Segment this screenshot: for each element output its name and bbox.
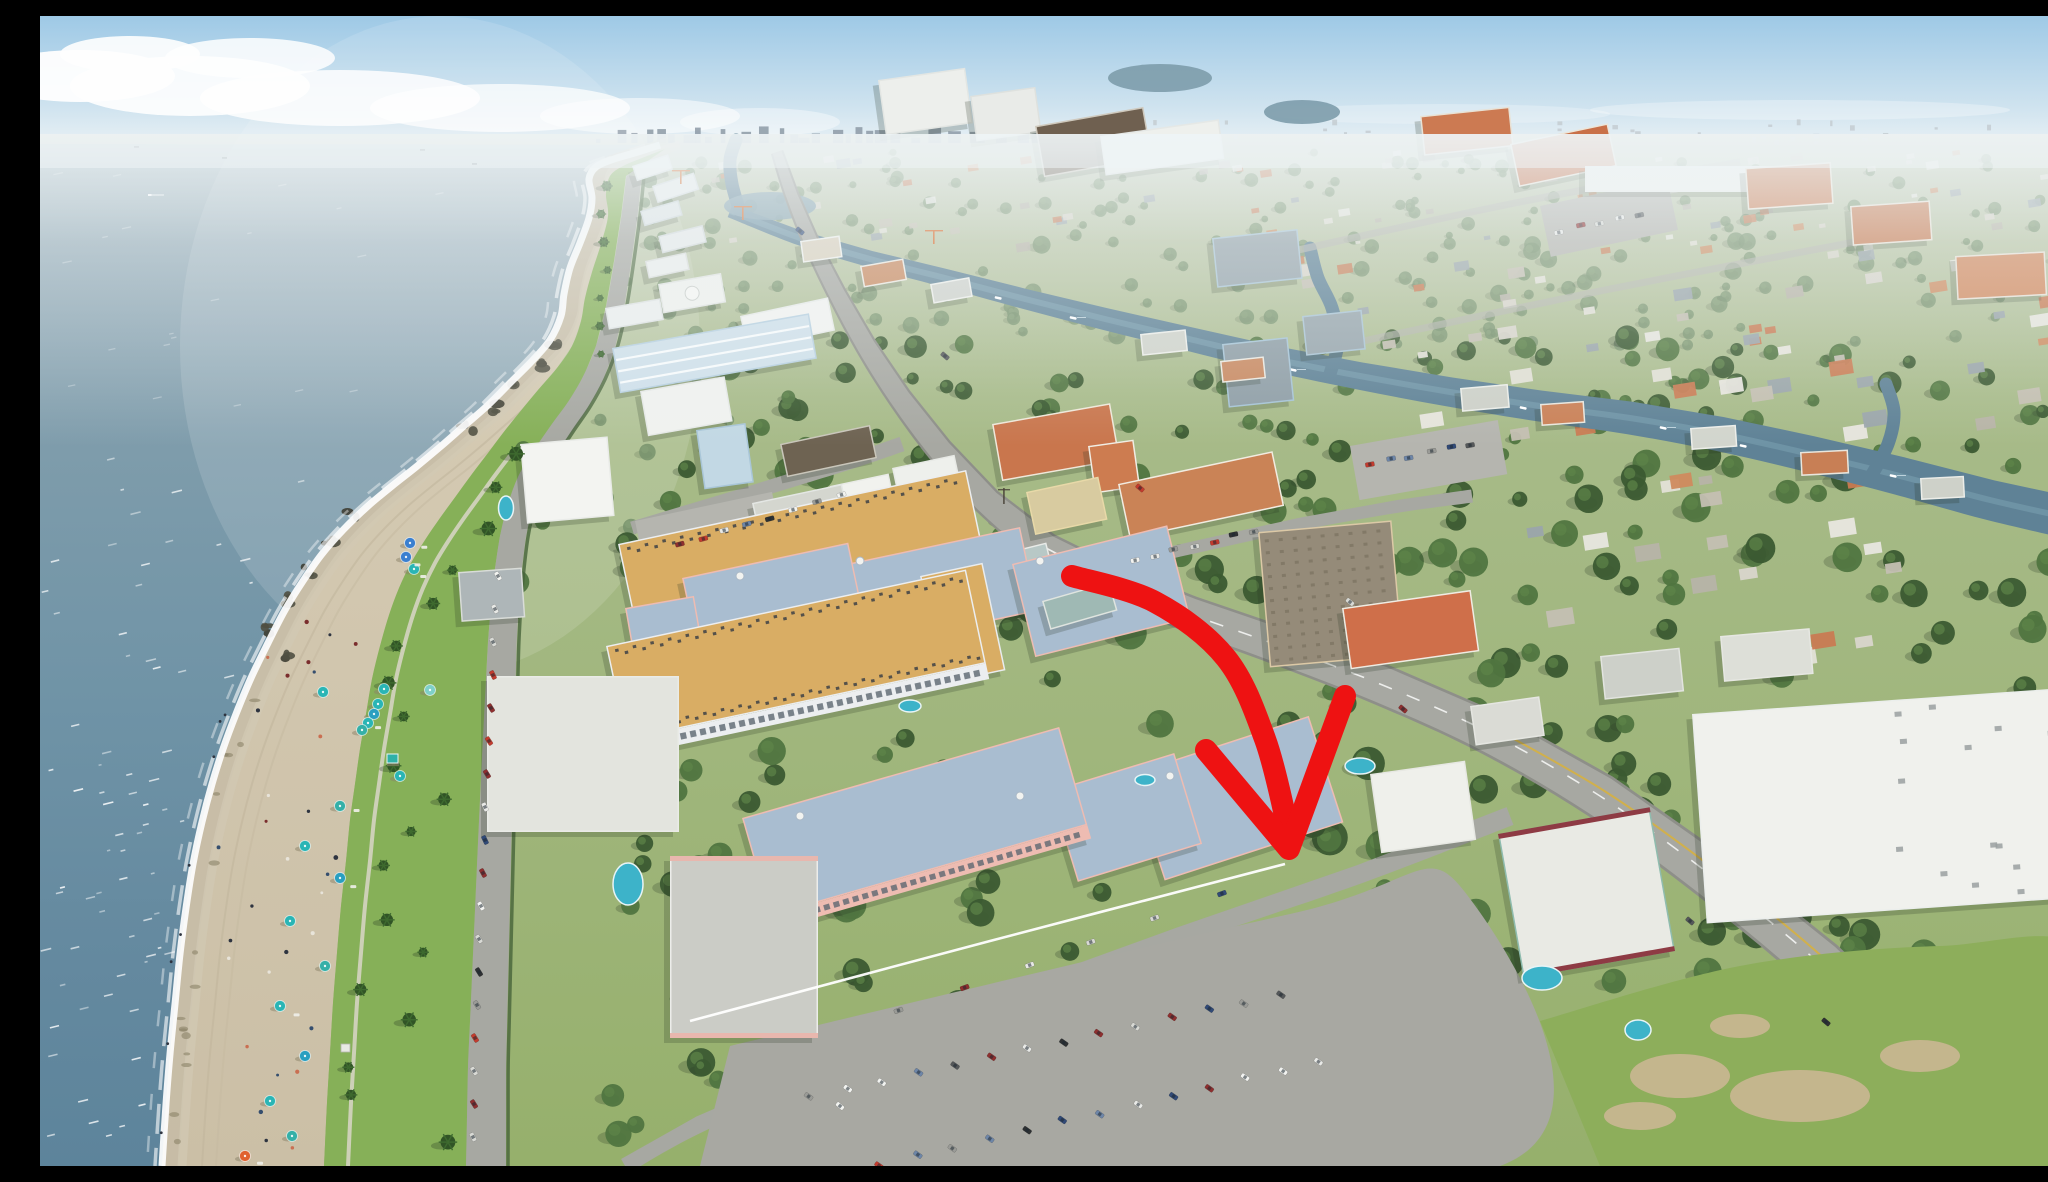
cloud — [1590, 100, 2010, 120]
building — [452, 568, 526, 628]
building — [664, 856, 818, 1043]
building — [1492, 807, 1676, 983]
aerial-photo-canvas — [40, 16, 2048, 1166]
building — [1594, 648, 1685, 706]
beach-cabana — [341, 1044, 350, 1052]
building — [872, 68, 974, 141]
building — [1364, 761, 1477, 859]
aerial-photo — [40, 16, 2048, 1166]
building — [1714, 628, 1814, 687]
building — [1686, 687, 2048, 929]
building — [481, 676, 679, 837]
building — [514, 436, 615, 529]
building — [1794, 449, 1849, 481]
lifeguard-tower — [387, 754, 399, 766]
distance-haze — [40, 134, 2048, 446]
building — [1914, 476, 1965, 506]
